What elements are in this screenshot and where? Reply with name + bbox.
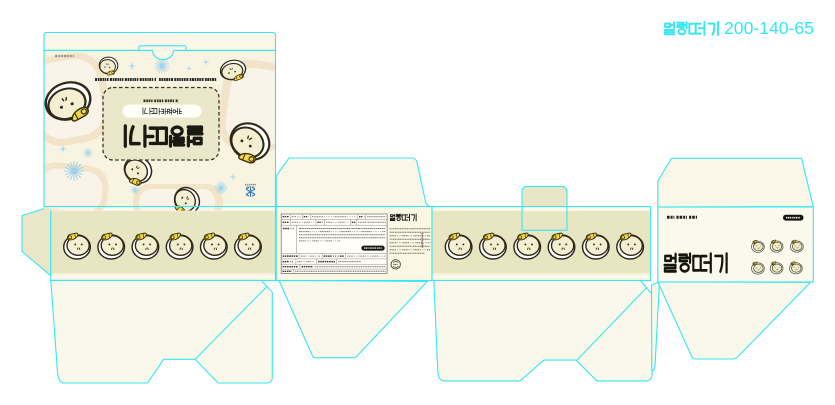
svg-text:200-140-65: 200-140-65 — [724, 18, 814, 38]
